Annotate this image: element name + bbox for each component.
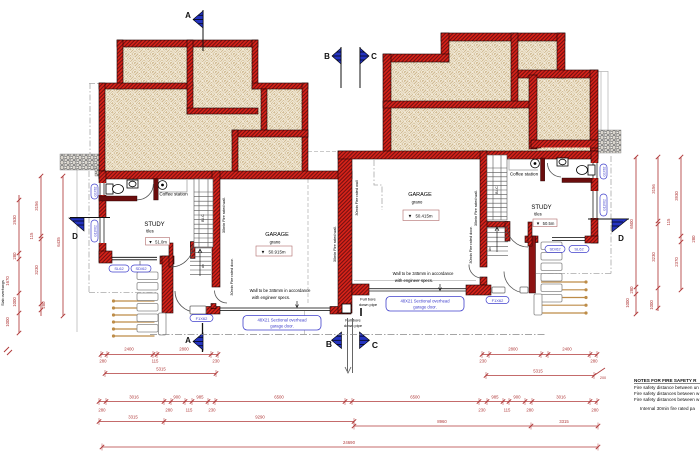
svg-text:2370: 2370 xyxy=(674,257,679,267)
svg-text:D: D xyxy=(618,234,624,243)
svg-text:2630: 2630 xyxy=(12,215,17,225)
svg-text:D: D xyxy=(72,232,78,241)
svg-text:230: 230 xyxy=(478,408,486,413)
svg-text:▼: ▼ xyxy=(148,239,152,244)
svg-text:115: 115 xyxy=(152,359,159,364)
svg-text:grano: grano xyxy=(270,240,281,245)
svg-text:30min Fire rated wall.: 30min Fire rated wall. xyxy=(222,197,226,233)
svg-text:G11X62: G11X62 xyxy=(94,225,98,237)
svg-text:with engineer specs.: with engineer specs. xyxy=(252,295,290,300)
svg-text:280: 280 xyxy=(526,408,534,413)
svg-text:Full bore: Full bore xyxy=(360,297,376,302)
svg-text:985: 985 xyxy=(196,395,204,400)
svg-text:SD/62: SD/62 xyxy=(135,266,147,271)
svg-text:garage door.: garage door. xyxy=(413,305,437,310)
svg-text:down pipe: down pipe xyxy=(344,323,363,328)
svg-text:3315: 3315 xyxy=(128,415,138,420)
svg-text:▼: ▼ xyxy=(408,214,412,219)
svg-text:280: 280 xyxy=(99,359,107,364)
svg-text:8960: 8960 xyxy=(437,419,447,424)
svg-text:Slab overhangs: Slab overhangs xyxy=(1,280,5,306)
svg-text:1000: 1000 xyxy=(649,300,654,310)
svg-text:▼: ▼ xyxy=(536,221,540,226)
svg-text:1670: 1670 xyxy=(5,276,10,286)
svg-text:tiles: tiles xyxy=(534,212,541,217)
svg-text:3016: 3016 xyxy=(129,395,139,400)
svg-text:200: 200 xyxy=(600,376,606,380)
svg-text:Internal 30min fire rated pa: Internal 30min fire rated pa xyxy=(640,406,695,411)
svg-text:230: 230 xyxy=(479,359,487,364)
svg-text:30min Fire rated wall.: 30min Fire rated wall. xyxy=(333,226,337,262)
svg-text:STUDY: STUDY xyxy=(144,222,164,228)
svg-text:F1X62: F1X62 xyxy=(196,316,209,321)
svg-text:Fire safety distances between: Fire safety distances between w xyxy=(634,391,700,396)
svg-text:280: 280 xyxy=(691,235,696,243)
svg-text:280: 280 xyxy=(98,408,106,413)
svg-text:Fire safety distances between: Fire safety distances between w xyxy=(634,397,700,402)
svg-text:51.0m: 51.0m xyxy=(155,239,167,244)
svg-text:A: A xyxy=(185,11,191,20)
svg-text:C: C xyxy=(371,52,377,61)
svg-text:24690: 24690 xyxy=(343,440,356,445)
svg-text:2800: 2800 xyxy=(508,347,518,352)
svg-text:230: 230 xyxy=(212,359,220,364)
svg-text:50.915m: 50.915m xyxy=(268,250,285,255)
svg-text:dn: dn xyxy=(488,247,492,251)
svg-text:3930: 3930 xyxy=(674,191,679,201)
svg-text:3315: 3315 xyxy=(559,419,569,424)
svg-text:grano: grano xyxy=(412,200,423,205)
svg-text:50.5m: 50.5m xyxy=(543,221,555,226)
svg-text:GARAGE: GARAGE xyxy=(265,232,289,238)
svg-text:280: 280 xyxy=(165,408,173,413)
svg-text:3230: 3230 xyxy=(34,265,39,275)
svg-text:B.I.C: B.I.C xyxy=(495,186,499,194)
svg-text:2400: 2400 xyxy=(124,347,134,352)
svg-text:3156: 3156 xyxy=(34,201,39,211)
svg-text:30min Fire rated wall: 30min Fire rated wall xyxy=(355,180,359,215)
svg-text:2800: 2800 xyxy=(179,347,189,352)
svg-text:F1X62: F1X62 xyxy=(492,298,505,303)
svg-text:48X21 Sectional overhead: 48X21 Sectional overhead xyxy=(400,299,450,304)
svg-text:Coffee station: Coffee station xyxy=(159,192,188,197)
svg-text:900: 900 xyxy=(513,395,521,400)
svg-text:G1X62: G1X62 xyxy=(94,186,98,196)
svg-text:A: A xyxy=(185,336,191,345)
svg-text:280: 280 xyxy=(591,408,599,413)
svg-text:30min Fire rated door.: 30min Fire rated door. xyxy=(230,258,234,295)
svg-text:Coffee station: Coffee station xyxy=(510,172,539,177)
svg-text:5315: 5315 xyxy=(156,367,166,372)
svg-text:STUDY: STUDY xyxy=(531,205,551,211)
svg-text:SD/62: SD/62 xyxy=(549,247,561,252)
svg-text:3156: 3156 xyxy=(651,184,656,194)
svg-text:6435: 6435 xyxy=(56,237,61,247)
svg-text:B: B xyxy=(324,52,330,61)
svg-text:6500: 6500 xyxy=(274,395,284,400)
svg-text:down pipe: down pipe xyxy=(359,302,378,307)
svg-text:30min Fire rated door.: 30min Fire rated door. xyxy=(469,226,473,263)
svg-text:9290: 9290 xyxy=(255,415,265,420)
svg-text:48X21 Sectional overhead: 48X21 Sectional overhead xyxy=(257,318,307,323)
svg-text:985: 985 xyxy=(491,395,499,400)
svg-text:1000: 1000 xyxy=(5,317,10,327)
svg-text:Fire safety distance between u: Fire safety distance between un xyxy=(634,385,699,390)
svg-text:900: 900 xyxy=(173,395,181,400)
svg-text:280: 280 xyxy=(12,252,17,260)
svg-text:3016: 3016 xyxy=(556,395,566,400)
svg-text:1000: 1000 xyxy=(12,297,17,307)
svg-text:tiles: tiles xyxy=(146,229,153,234)
svg-text:B.I.C: B.I.C xyxy=(201,214,205,222)
svg-text:C: C xyxy=(372,340,378,350)
svg-text:SL62: SL62 xyxy=(574,247,584,252)
svg-text:280: 280 xyxy=(41,301,46,309)
svg-text:1000: 1000 xyxy=(625,298,630,308)
svg-text:▼: ▼ xyxy=(261,250,265,255)
svg-text:SL62: SL62 xyxy=(114,266,124,271)
svg-text:2400: 2400 xyxy=(562,347,572,352)
svg-text:115: 115 xyxy=(666,218,671,225)
svg-text:6500: 6500 xyxy=(629,219,634,229)
svg-text:280: 280 xyxy=(590,359,598,364)
svg-text:50.415m: 50.415m xyxy=(415,214,432,219)
svg-text:115: 115 xyxy=(186,408,193,413)
svg-text:3230: 3230 xyxy=(651,252,656,262)
svg-text:6500: 6500 xyxy=(410,395,420,400)
svg-text:115: 115 xyxy=(504,408,511,413)
svg-text:Wall to be 345mm in accordance: Wall to be 345mm in accordance xyxy=(250,288,311,293)
svg-text:with engineer specs.: with engineer specs. xyxy=(395,278,433,283)
svg-text:230: 230 xyxy=(208,408,216,413)
svg-text:B: B xyxy=(326,339,332,349)
svg-text:5315: 5315 xyxy=(533,369,543,374)
svg-text:280: 280 xyxy=(629,286,634,294)
svg-text:115: 115 xyxy=(29,232,34,239)
svg-text:G11X62: G11X62 xyxy=(603,199,607,211)
svg-text:GARAGE: GARAGE xyxy=(408,192,432,198)
svg-text:garage door.: garage door. xyxy=(270,324,294,329)
svg-text:Wall to be 345mm in accordance: Wall to be 345mm in accordance xyxy=(393,271,454,276)
svg-text:30min Fire rated wall.: 30min Fire rated wall. xyxy=(474,190,478,226)
svg-text:G1X62: G1X62 xyxy=(603,166,607,176)
svg-text:dn: dn xyxy=(201,264,205,268)
svg-text:NOTES FOR FIRE SAFETY R: NOTES FOR FIRE SAFETY R xyxy=(634,378,697,383)
